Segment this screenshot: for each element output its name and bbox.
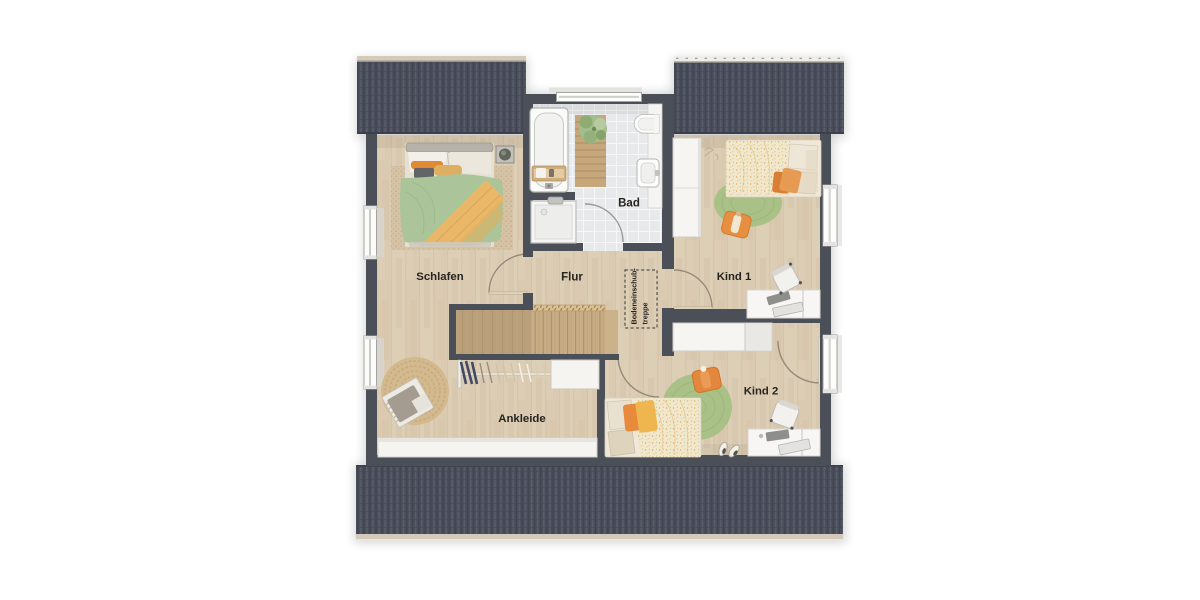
svg-text:Ankleide: Ankleide	[498, 413, 545, 425]
svg-text:Bodeneinschub-: Bodeneinschub-	[630, 268, 639, 325]
svg-text:Flur: Flur	[561, 272, 583, 284]
svg-text:Bad: Bad	[618, 198, 640, 210]
svg-text:Kind 2: Kind 2	[744, 386, 779, 398]
svg-text:Schlafen: Schlafen	[416, 271, 464, 283]
svg-text:Kind 1: Kind 1	[717, 271, 752, 283]
svg-text:treppe: treppe	[641, 303, 650, 325]
